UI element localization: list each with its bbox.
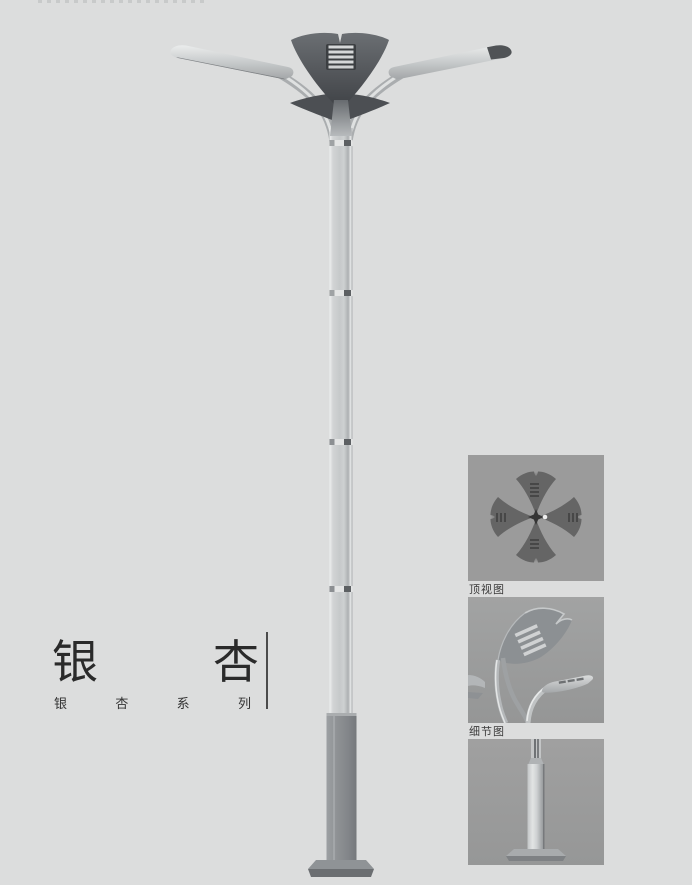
product-title: 银 杏 [52,638,259,686]
series-char-4: 列 [238,693,251,712]
base-view-image [468,739,604,865]
title-char-2: 杏 [213,638,259,686]
series-char-3: 系 [177,693,190,712]
top-view-image [468,455,604,581]
fixture-vent-slats [326,44,356,70]
detail-panel-column: 顶视图 [468,455,604,865]
catalog-page: 银 杏 银 杏 系 列 [0,0,692,885]
title-divider-line [266,632,268,709]
base-view-panel [468,739,604,865]
lamp-top-fixture [290,33,390,136]
lamp-base [308,713,374,877]
title-char-1: 银 [52,638,98,686]
series-char-2: 杏 [115,693,128,712]
top-view-caption: 顶视图 [468,581,604,597]
product-series-label: 银 杏 系 列 [54,693,251,712]
detail-view-panel [468,597,604,723]
lamp-pole [330,128,353,718]
top-view-panel [468,455,604,581]
detail-view-caption: 细节图 [468,723,604,739]
detail-view-image [468,597,604,723]
series-char-1: 银 [54,693,67,712]
